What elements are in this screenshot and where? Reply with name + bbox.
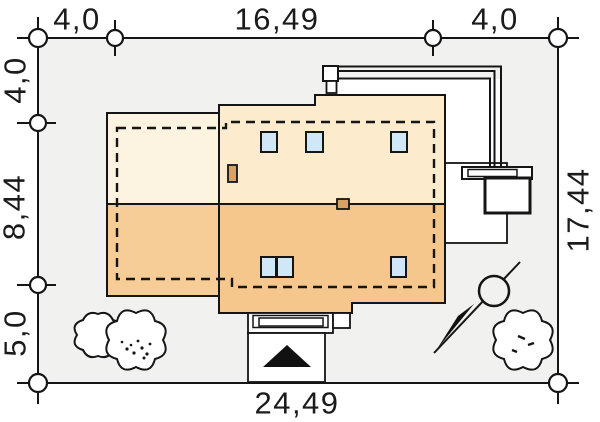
survey-point (425, 30, 441, 46)
dim-right-side: 17,44 (563, 167, 594, 252)
wing-roof-lower (107, 204, 219, 296)
survey-point (30, 115, 46, 131)
dim-top-right: 4,0 (471, 4, 519, 35)
skylight-window (277, 257, 293, 277)
wing-roof-upper (107, 113, 219, 204)
dim-top-left: 4,0 (53, 4, 101, 35)
dim-top-center: 16,49 (234, 4, 319, 35)
dim-left-middle: 8,44 (0, 174, 30, 240)
skylight-window (261, 257, 276, 277)
survey-point (549, 374, 567, 392)
skylight-window (261, 132, 277, 152)
ridge-chimney (337, 199, 349, 209)
survey-point (549, 29, 567, 47)
chimney (228, 165, 237, 182)
dim-left-top: 4,0 (0, 56, 31, 104)
site-plan-drawing (0, 0, 600, 422)
survey-point (107, 30, 123, 46)
survey-point (29, 374, 47, 392)
dim-bottom-center: 24,49 (254, 388, 339, 419)
fence-post (323, 66, 338, 81)
skylight-window (306, 132, 323, 152)
skylight-window (391, 257, 406, 277)
site-plan: 4,0 16,49 4,0 4,0 8,44 5,0 17,44 24,49 (0, 0, 600, 422)
main-roof-lower (219, 204, 445, 313)
dim-left-bottom: 5,0 (0, 309, 31, 357)
survey-point (30, 277, 46, 293)
fence-post-small (327, 81, 337, 93)
survey-point (29, 29, 47, 47)
gate-leaf (468, 170, 517, 177)
skylight-window (391, 132, 407, 152)
utility-enclosure (485, 178, 530, 213)
main-roof-upper (219, 95, 445, 204)
